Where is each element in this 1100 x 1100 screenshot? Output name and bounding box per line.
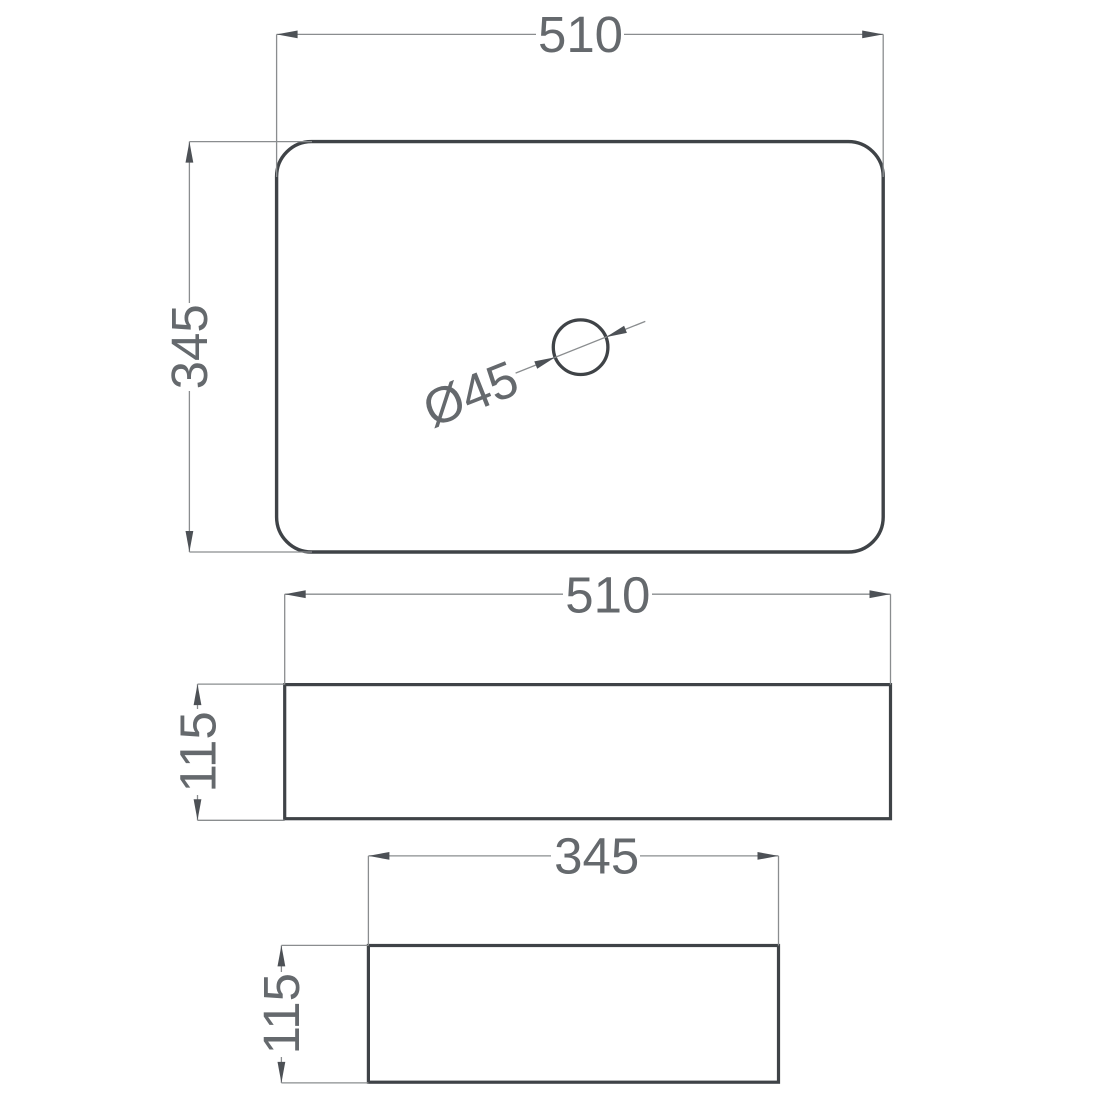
svg-text:510: 510	[538, 6, 623, 63]
svg-text:115: 115	[169, 711, 226, 792]
svg-text:115: 115	[253, 973, 310, 1054]
svg-text:510: 510	[565, 566, 650, 623]
svg-text:345: 345	[161, 304, 218, 389]
svg-text:345: 345	[554, 828, 639, 885]
